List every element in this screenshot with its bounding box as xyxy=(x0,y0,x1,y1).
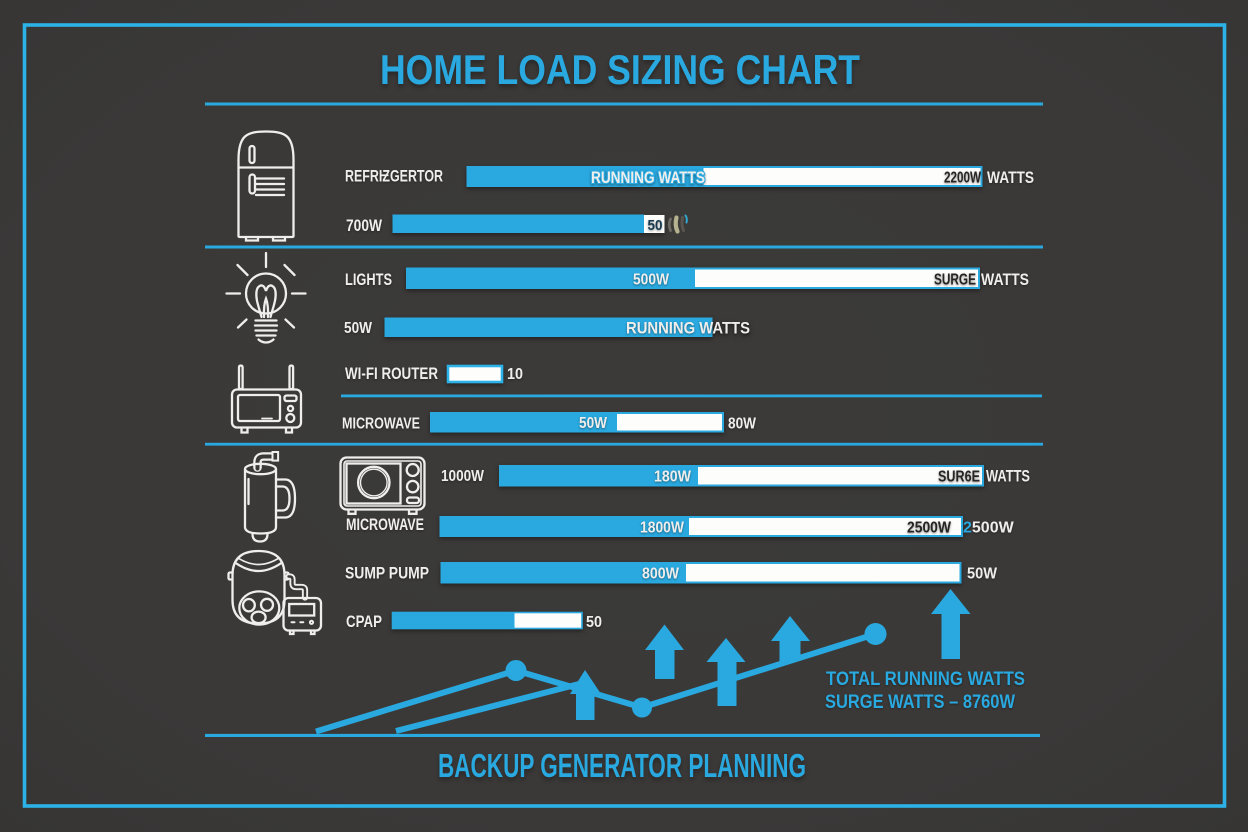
svg-text:WATTS: WATTS xyxy=(987,168,1034,187)
svg-text:50: 50 xyxy=(586,614,602,631)
svg-text:RUNNING WATTS: RUNNING WATTS xyxy=(591,169,705,187)
svg-text:LIGHTS: LIGHTS xyxy=(345,270,392,289)
svg-text:SUR6E: SUR6E xyxy=(938,469,980,486)
svg-text:800W: 800W xyxy=(642,566,680,583)
svg-text:50W: 50W xyxy=(579,415,608,432)
svg-text:HOME LOAD SIZING CHART: HOME LOAD SIZING CHART xyxy=(380,46,860,93)
svg-text:MICROWAVE: MICROWAVE xyxy=(342,416,420,433)
svg-text:RUNNING WATTS: RUNNING WATTS xyxy=(626,319,750,338)
svg-text:10: 10 xyxy=(507,366,523,383)
svg-text:SUMP PUMP: SUMP PUMP xyxy=(345,564,429,583)
svg-text:1000W: 1000W xyxy=(441,468,485,485)
svg-text:50W: 50W xyxy=(344,320,373,337)
svg-text:50W: 50W xyxy=(967,566,998,583)
svg-text:TOTAL RUNNING WATTS: TOTAL RUNNING WATTS xyxy=(826,669,1025,690)
svg-text:SURGE: SURGE xyxy=(934,272,976,289)
svg-text:2500W: 2500W xyxy=(907,520,952,537)
svg-text:WATTS: WATTS xyxy=(986,467,1030,486)
svg-text:180W: 180W xyxy=(654,469,692,486)
svg-text:1800W: 1800W xyxy=(640,520,685,537)
svg-text:CPAP: CPAP xyxy=(346,612,382,631)
svg-text:2500W: 2500W xyxy=(963,520,1015,537)
svg-text:50: 50 xyxy=(648,217,663,234)
svg-text:MICROWAVE: MICROWAVE xyxy=(346,515,424,534)
svg-text:80W: 80W xyxy=(728,416,757,433)
svg-text:BACKUP GENERATOR PLANNING: BACKUP GENERATOR PLANNING xyxy=(438,747,806,784)
svg-text:REFRIZGERTOR: REFRIZGERTOR xyxy=(345,167,443,186)
svg-text:WATTS: WATTS xyxy=(981,270,1029,289)
svg-text:500W: 500W xyxy=(633,272,670,289)
svg-text:2200W: 2200W xyxy=(944,170,981,187)
svg-text:700W: 700W xyxy=(346,216,383,235)
svg-text:WI-FI ROUTER: WI-FI ROUTER xyxy=(345,364,438,383)
svg-text:SURGE WATTS – 8760W: SURGE WATTS – 8760W xyxy=(825,692,1015,713)
